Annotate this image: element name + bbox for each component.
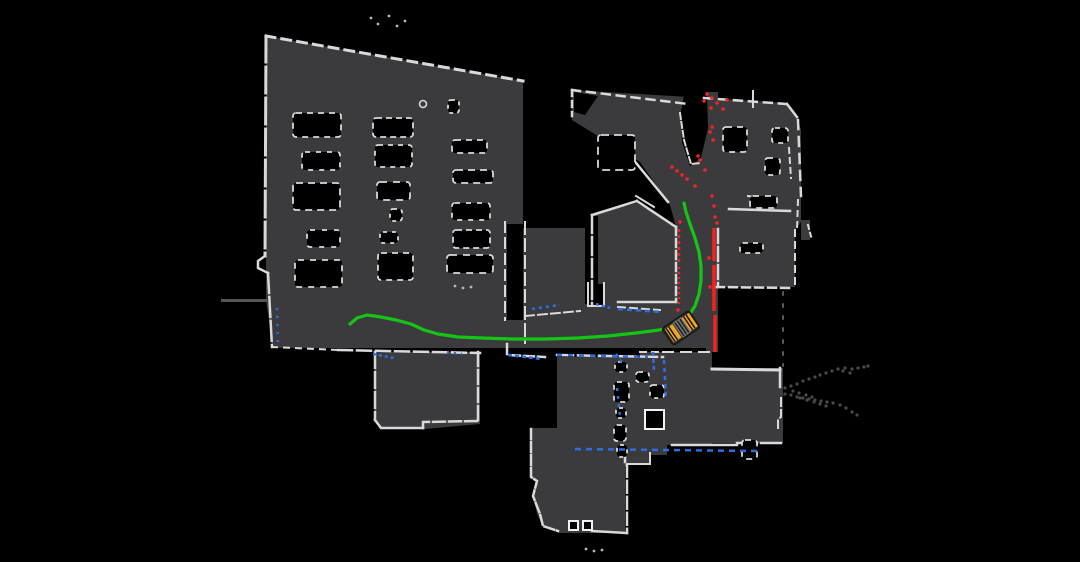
ray-noise-dot xyxy=(841,369,844,372)
red-scan-dot xyxy=(705,92,709,96)
ray-noise-dot xyxy=(818,402,821,405)
laser-ray-noise-layer xyxy=(783,364,869,416)
wall-box xyxy=(645,410,664,429)
obstacle-blob xyxy=(375,145,412,167)
red-scan-dot xyxy=(675,169,679,173)
ray-noise-dot xyxy=(855,413,858,416)
ray-noise-dot xyxy=(856,366,859,369)
wall-segment xyxy=(265,36,266,256)
west-double-wall-strip xyxy=(507,224,523,320)
obstacle-blob xyxy=(447,255,493,273)
obstacle-blob xyxy=(377,182,410,200)
obstacle-blob xyxy=(293,113,341,137)
wall-segment xyxy=(338,350,480,353)
bottom-right-room-west xyxy=(640,352,712,445)
ray-noise-dot xyxy=(795,395,798,398)
red-scan-dot xyxy=(713,215,717,219)
obstacle-blob xyxy=(617,445,627,457)
obstacle-blob xyxy=(723,127,747,152)
red-scan-dot xyxy=(685,177,689,181)
obstacle-blob xyxy=(614,382,629,402)
ray-noise-dot xyxy=(831,401,834,404)
ray-noise-dot xyxy=(836,367,839,370)
map-speckle xyxy=(601,549,604,552)
map-speckle xyxy=(370,17,373,20)
red-scan-dot xyxy=(715,101,719,105)
right-mid-unknown xyxy=(718,288,783,368)
red-scan-dot xyxy=(710,194,714,198)
ray-noise-dot xyxy=(783,392,786,395)
obstacle-blob xyxy=(614,425,626,441)
red-scan-dot xyxy=(721,107,725,111)
obstacle-blob xyxy=(293,183,340,210)
obstacle-blob xyxy=(636,372,649,382)
ray-noise-dot xyxy=(798,396,801,399)
red-scan-dot xyxy=(698,158,702,162)
ray-noise-dot xyxy=(797,391,800,394)
obstacle-blob xyxy=(302,152,340,170)
obstacle-blob xyxy=(295,260,342,287)
ray-noise-dot xyxy=(791,389,794,392)
obstacle-blob xyxy=(765,158,780,175)
ray-noise-dot xyxy=(812,400,815,403)
ray-noise-dot xyxy=(825,400,828,403)
ray-noise-dot xyxy=(801,396,804,399)
red-scan-dot xyxy=(725,98,729,102)
ray-noise-dot xyxy=(830,369,833,372)
bottom-left-room xyxy=(375,352,480,429)
wall-segment xyxy=(716,287,793,288)
wall-segment xyxy=(712,369,780,370)
obstacle-blob xyxy=(452,203,490,220)
red-scan-dot xyxy=(703,168,707,172)
red-scan-dot xyxy=(708,285,712,289)
ray-noise-dot xyxy=(866,364,869,367)
ray-noise-dot xyxy=(850,410,853,413)
obstacle-blob xyxy=(453,170,493,183)
map-speckle xyxy=(377,23,380,26)
ray-noise-dot xyxy=(818,373,821,376)
ray-noise-dot xyxy=(850,367,853,370)
ray-noise-dot xyxy=(810,395,813,398)
obstacle-blob xyxy=(307,230,340,247)
obstacle-blob xyxy=(772,128,788,143)
obstacle-blob xyxy=(373,118,413,137)
obstacle-blob xyxy=(616,408,626,418)
red-scan-dot xyxy=(680,173,684,177)
map-speckle xyxy=(388,15,391,18)
map-speckle xyxy=(470,286,473,289)
obstacle-blob xyxy=(615,362,627,372)
obstacle-blob xyxy=(598,135,635,170)
south-corridor-tail xyxy=(625,445,650,465)
ray-noise-dot xyxy=(801,379,804,382)
ray-noise-dot xyxy=(789,393,792,396)
red-scan-dot xyxy=(710,125,714,129)
obstacle-blob xyxy=(380,232,398,243)
red-scan-dot xyxy=(711,138,715,142)
red-scan-dot xyxy=(707,256,711,260)
red-scan-dot xyxy=(702,99,706,103)
red-scan-dot xyxy=(693,184,697,188)
ray-noise-dot xyxy=(838,403,841,406)
obstacle-blob xyxy=(452,140,487,153)
ray-noise-dot xyxy=(804,393,807,396)
ray-noise-dot xyxy=(862,365,865,368)
ray-noise-dot xyxy=(795,382,798,385)
ray-noise-dot xyxy=(813,375,816,378)
map-speckle xyxy=(462,287,465,290)
map-speckle xyxy=(585,548,588,551)
wall-segment xyxy=(797,200,798,230)
ray-noise-dot xyxy=(783,386,786,389)
ray-noise-dot xyxy=(844,406,847,409)
obstacle-blob xyxy=(448,100,459,113)
wall-box xyxy=(569,521,578,530)
stray-scan-line xyxy=(221,299,267,302)
red-scan-dot xyxy=(670,165,674,169)
ray-noise-dot xyxy=(848,371,851,374)
ray-noise-dot xyxy=(807,377,810,380)
map-speckle xyxy=(396,25,399,28)
red-scan-dot xyxy=(678,220,682,224)
map-speckle xyxy=(404,20,407,23)
obstacle-blob xyxy=(453,230,490,248)
ray-noise-dot xyxy=(819,399,822,402)
blue-scan-dashes xyxy=(653,352,654,371)
bottom-right-room-east xyxy=(712,368,783,443)
ray-noise-dot xyxy=(805,398,808,401)
obstacle-blob xyxy=(750,196,777,208)
obstacle-blob xyxy=(390,209,402,221)
obstacle-blob xyxy=(650,385,664,398)
red-scan-dot xyxy=(712,204,716,208)
red-scan-dot xyxy=(696,154,700,158)
map-speckle xyxy=(593,550,596,553)
ray-noise-dot xyxy=(824,371,827,374)
red-scan-dot xyxy=(709,106,713,110)
map-viewport[interactable] xyxy=(0,0,1080,562)
obstacle-blob xyxy=(740,243,763,253)
ray-noise-dot xyxy=(789,384,792,387)
map-speckle xyxy=(454,285,457,288)
ray-noise-dot xyxy=(843,366,846,369)
occupancy-grid-map xyxy=(0,0,1080,562)
red-scan-dot xyxy=(676,308,680,312)
red-scan-dot xyxy=(708,130,712,134)
obstacle-blob xyxy=(378,253,413,280)
south-corridor xyxy=(531,428,625,533)
red-scan-dot xyxy=(710,96,714,100)
red-scan-dot xyxy=(715,221,719,225)
ray-noise-dot xyxy=(824,404,827,407)
wall-box xyxy=(583,521,592,530)
obstacle-blob xyxy=(742,440,757,459)
